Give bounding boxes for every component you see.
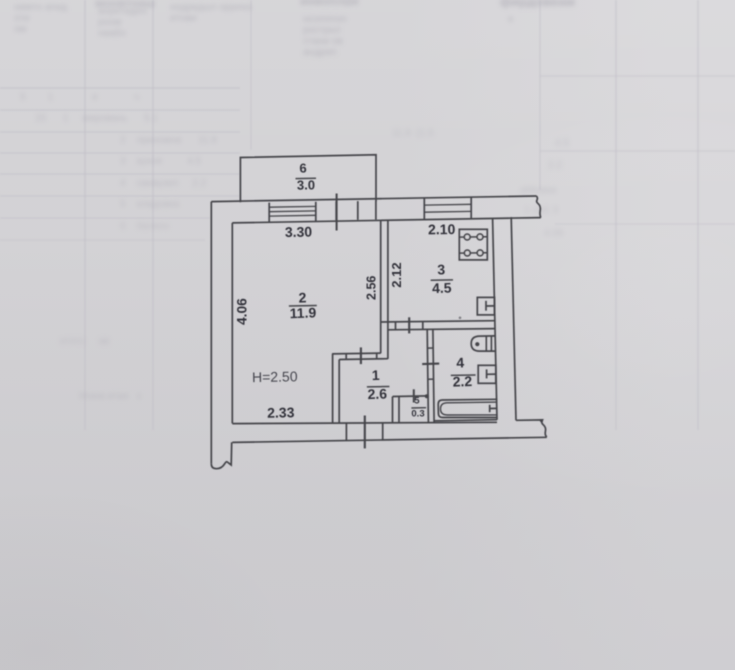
svg-text:0.3: 0.3 [411,409,424,420]
svg-text:2.10: 2.10 [428,221,456,237]
svg-text:2.6: 2.6 [367,385,387,402]
svg-text:2: 2 [298,289,307,305]
svg-text:4: 4 [456,354,465,370]
svg-text:2.56: 2.56 [365,276,379,300]
svg-text:2.12: 2.12 [389,262,404,287]
svg-text:3: 3 [437,261,446,277]
svg-text:H=2.50: H=2.50 [252,368,298,385]
svg-text:4.5: 4.5 [432,279,452,296]
svg-text:4.06: 4.06 [235,298,250,325]
svg-text:3.30: 3.30 [285,224,313,240]
svg-text:5: 5 [414,395,420,406]
svg-text:1: 1 [372,367,381,383]
svg-text:3.0: 3.0 [297,177,315,192]
svg-text:2.33: 2.33 [267,404,295,420]
svg-text:11.9: 11.9 [289,304,316,321]
svg-text:6: 6 [299,160,306,175]
